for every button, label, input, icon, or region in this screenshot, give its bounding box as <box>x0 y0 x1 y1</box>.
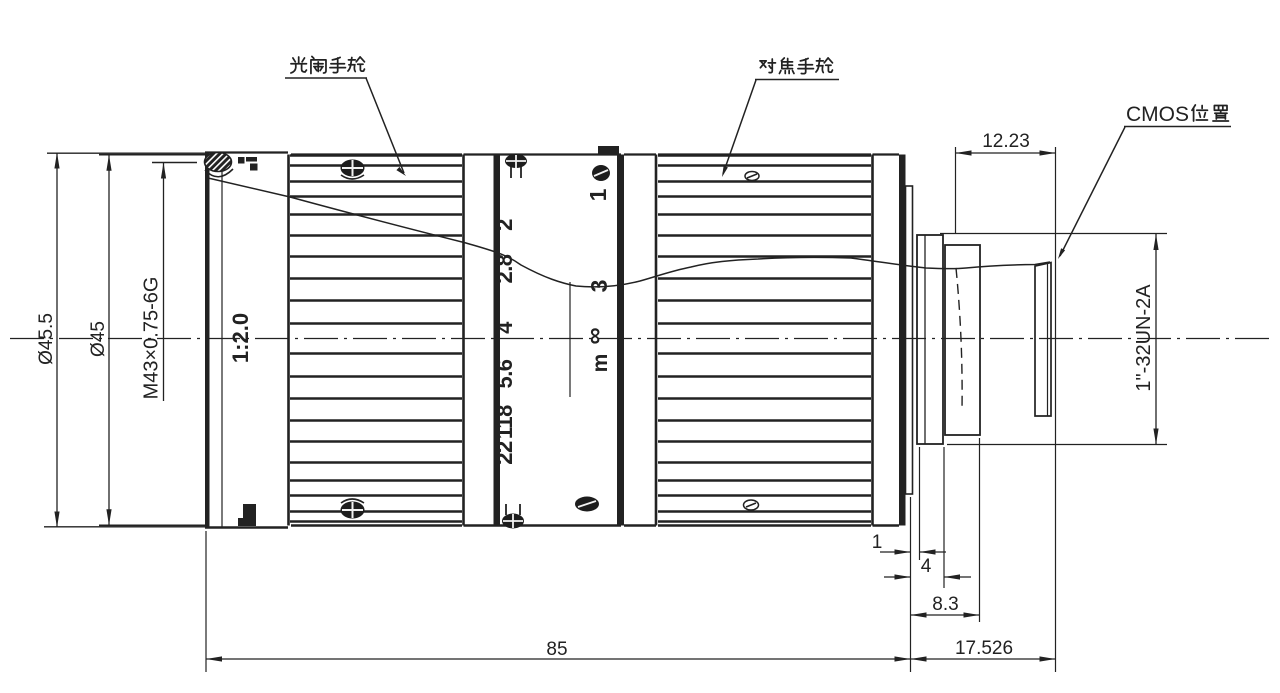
svg-text:CMOS: CMOS <box>1126 103 1189 126</box>
svg-text:11: 11 <box>492 417 517 440</box>
svg-text:1: 1 <box>872 532 883 553</box>
svg-text:4: 4 <box>921 556 932 577</box>
svg-text:1: 1 <box>585 188 611 201</box>
svg-text:8.3: 8.3 <box>932 594 958 615</box>
svg-text:M43×0.75-6G: M43×0.75-6G <box>141 277 163 400</box>
svg-text:1:2.0: 1:2.0 <box>228 313 253 363</box>
svg-text:85: 85 <box>546 639 567 660</box>
svg-text:2: 2 <box>492 219 517 231</box>
svg-text:1"-32UN-2A: 1"-32UN-2A <box>1133 284 1155 392</box>
svg-text:8: 8 <box>492 405 517 417</box>
svg-text:17.526: 17.526 <box>955 638 1013 659</box>
svg-text:4: 4 <box>492 321 517 334</box>
svg-text:∞: ∞ <box>581 327 608 344</box>
svg-text:m: m <box>589 354 612 373</box>
svg-text:22: 22 <box>492 441 517 465</box>
svg-text:Ø45: Ø45 <box>88 321 109 357</box>
svg-text:12.23: 12.23 <box>982 131 1030 152</box>
svg-text:5.6: 5.6 <box>492 359 517 388</box>
svg-text:2.8: 2.8 <box>492 254 517 283</box>
svg-text:Ø45.5: Ø45.5 <box>36 313 57 365</box>
